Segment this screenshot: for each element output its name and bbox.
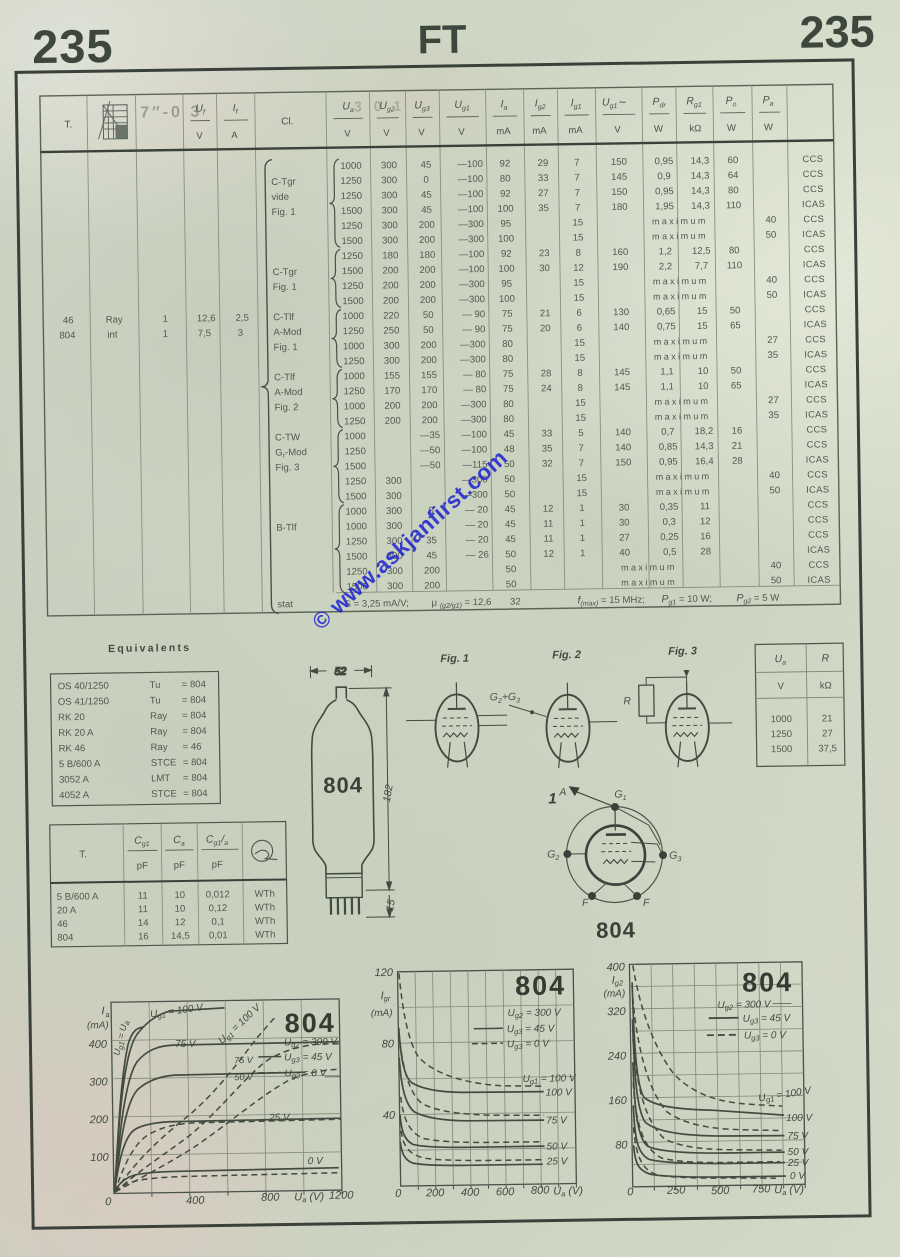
svg-text:40: 40	[765, 215, 776, 226]
svg-text:0: 0	[423, 175, 429, 186]
svg-text:15: 15	[574, 338, 585, 349]
svg-text:32: 32	[542, 458, 553, 469]
svg-text:Rg1: Rg1	[686, 95, 702, 109]
svg-text:0,25: 0,25	[660, 532, 679, 543]
svg-text:1: 1	[579, 503, 585, 514]
svg-text:0,01: 0,01	[209, 930, 228, 941]
svg-text:G1: G1	[614, 788, 626, 802]
svg-text:Ug3 = 45 V: Ug3 = 45 V	[507, 1023, 556, 1036]
svg-text:92: 92	[501, 249, 512, 260]
svg-text:W: W	[727, 123, 736, 134]
svg-text:vide: vide	[271, 192, 289, 203]
svg-text:7: 7	[574, 172, 580, 183]
svg-text:320: 320	[607, 1006, 626, 1018]
svg-text:50 V: 50 V	[234, 1072, 254, 1082]
svg-text:160: 160	[612, 247, 628, 258]
svg-text:ICAS: ICAS	[807, 575, 830, 585]
svg-text:200: 200	[384, 401, 400, 412]
svg-text:25 V: 25 V	[546, 1156, 569, 1167]
svg-text:140: 140	[615, 427, 631, 438]
svg-text:Ray: Ray	[106, 315, 123, 326]
svg-text:I: I	[101, 1005, 104, 1017]
svg-text:V: V	[344, 128, 351, 139]
svg-text:W: W	[654, 124, 663, 135]
svg-text:4052 A: 4052 A	[59, 790, 90, 801]
svg-text:Ug1 = 100 V: Ug1 = 100 V	[758, 1085, 814, 1105]
svg-text:21: 21	[732, 441, 743, 452]
svg-text:CCS: CCS	[805, 304, 826, 314]
svg-text:45: 45	[426, 550, 437, 561]
svg-text:92: 92	[500, 158, 511, 169]
svg-text:200: 200	[421, 355, 437, 366]
svg-text:1250: 1250	[344, 386, 366, 397]
svg-text:1: 1	[548, 790, 557, 807]
svg-text:—100: —100	[459, 264, 485, 275]
svg-text:10: 10	[174, 890, 185, 901]
svg-text:120: 120	[374, 967, 393, 979]
svg-text:= 804: = 804	[182, 710, 207, 721]
svg-text:CCS: CCS	[806, 364, 827, 374]
svg-text:stat: stat	[277, 599, 293, 610]
svg-text:CCS: CCS	[802, 154, 823, 164]
svg-text:A: A	[231, 130, 238, 141]
svg-text:—100: —100	[461, 429, 487, 440]
svg-text:11: 11	[138, 891, 148, 902]
svg-text:182: 182	[381, 784, 396, 804]
svg-text:75: 75	[503, 384, 514, 395]
svg-text:Igr: Igr	[380, 990, 390, 1003]
svg-text:150: 150	[611, 157, 627, 168]
svg-text:Cl.: Cl.	[281, 116, 293, 127]
svg-text:OS 41/1250: OS 41/1250	[58, 696, 109, 708]
svg-text:150: 150	[611, 187, 627, 198]
svg-text:100 V: 100 V	[546, 1087, 574, 1098]
svg-text:WTh: WTh	[255, 916, 275, 927]
svg-text:804: 804	[596, 917, 636, 943]
svg-text:750: 750	[752, 1183, 771, 1195]
svg-text:1250: 1250	[341, 191, 363, 202]
svg-text:20: 20	[540, 323, 551, 334]
svg-text:CCS: CCS	[805, 334, 826, 344]
svg-text:16: 16	[700, 531, 711, 542]
svg-text:200: 200	[89, 1114, 109, 1126]
svg-text:WTh: WTh	[255, 902, 275, 913]
svg-text:1: 1	[580, 533, 586, 544]
svg-text:75 V: 75 V	[787, 1131, 809, 1142]
svg-text:— 20: — 20	[465, 520, 488, 531]
svg-text:200: 200	[420, 280, 436, 291]
svg-text:80: 80	[503, 399, 514, 410]
svg-text:80: 80	[382, 1038, 395, 1050]
svg-text:300: 300	[386, 521, 402, 532]
svg-text:110: 110	[726, 200, 741, 211]
svg-text:200: 200	[421, 340, 437, 351]
svg-text:15: 15	[575, 398, 586, 409]
svg-text:Pg1 = 10 W;: Pg1 = 10 W;	[661, 593, 712, 607]
svg-text:11: 11	[543, 519, 553, 530]
svg-text:12,6: 12,6	[197, 313, 216, 324]
svg-text:15: 15	[574, 353, 585, 364]
svg-text:15: 15	[697, 306, 708, 317]
svg-text:400: 400	[606, 961, 625, 973]
svg-text:ICAS: ICAS	[804, 349, 827, 359]
svg-text:200: 200	[382, 265, 398, 276]
svg-text:12: 12	[543, 549, 554, 560]
svg-text:Ug3 = 0 V: Ug3 = 0 V	[507, 1039, 550, 1052]
svg-text:300: 300	[381, 190, 397, 201]
svg-text:7,5: 7,5	[198, 328, 212, 339]
svg-text:50: 50	[504, 474, 515, 485]
svg-text:Equivalents: Equivalents	[108, 642, 191, 655]
svg-text:20 A: 20 A	[57, 905, 77, 916]
svg-text:maximum: maximum	[655, 411, 711, 422]
svg-text:45: 45	[421, 160, 432, 171]
svg-text:1000: 1000	[346, 521, 368, 532]
svg-text:7: 7	[575, 188, 581, 199]
svg-text:—50: —50	[420, 445, 440, 456]
svg-text:V: V	[614, 124, 621, 135]
svg-text:1250: 1250	[343, 326, 365, 337]
svg-text:Ua (V): Ua (V)	[774, 1184, 804, 1197]
svg-text:Fig. 3: Fig. 3	[668, 645, 697, 657]
svg-text:1250: 1250	[344, 446, 366, 457]
svg-text:600: 600	[496, 1186, 515, 1198]
svg-text:1250: 1250	[346, 536, 368, 547]
svg-text:100: 100	[90, 1152, 109, 1164]
svg-text:50: 50	[506, 564, 517, 575]
svg-text:50: 50	[505, 549, 516, 560]
svg-text:—35: —35	[420, 430, 440, 441]
svg-text:400: 400	[186, 1195, 205, 1207]
svg-text:— 20: — 20	[465, 505, 488, 516]
svg-text:30: 30	[619, 502, 630, 513]
svg-text:—300: —300	[459, 294, 485, 305]
svg-text:11: 11	[700, 501, 710, 512]
svg-text:mA: mA	[568, 125, 583, 136]
svg-text:200: 200	[419, 220, 435, 231]
svg-text:— 80: — 80	[463, 384, 486, 395]
svg-text:45: 45	[505, 534, 516, 545]
svg-text:C-Tlf: C-Tlf	[274, 372, 295, 383]
svg-text:CCS: CCS	[804, 244, 825, 254]
svg-text:37,5: 37,5	[818, 743, 837, 754]
svg-text:6: 6	[577, 323, 583, 334]
svg-text:45: 45	[421, 190, 432, 201]
svg-text:Ua (V): Ua (V)	[294, 1191, 324, 1204]
svg-text:Fig. 2: Fig. 2	[274, 402, 298, 413]
svg-text:16: 16	[138, 931, 149, 942]
svg-text:804: 804	[59, 330, 76, 341]
svg-text:1000: 1000	[340, 161, 362, 172]
svg-text:CCS: CCS	[803, 169, 824, 179]
svg-text:ICAS: ICAS	[803, 259, 826, 269]
svg-text:Ug1 = 100 V: Ug1 = 100 V	[149, 1002, 205, 1021]
svg-text:mA: mA	[496, 126, 511, 137]
svg-text:180: 180	[612, 202, 628, 213]
svg-text:46: 46	[63, 315, 74, 326]
svg-text:— 90: — 90	[462, 309, 485, 320]
svg-text:maximum: maximum	[656, 471, 712, 482]
svg-text:—100: —100	[461, 444, 487, 455]
svg-text:Ig2: Ig2	[535, 98, 546, 112]
svg-text:300: 300	[381, 160, 397, 171]
svg-text:STCE: STCE	[151, 757, 177, 768]
svg-text:Ig1: Ig1	[571, 97, 582, 111]
svg-text:80: 80	[729, 245, 740, 256]
svg-text:150: 150	[615, 457, 631, 468]
svg-text:Fig. 1: Fig. 1	[272, 207, 296, 218]
svg-text:CCS: CCS	[808, 560, 829, 570]
svg-text:300: 300	[386, 506, 402, 517]
svg-text:10: 10	[698, 366, 709, 377]
svg-text:maximum: maximum	[654, 351, 710, 362]
svg-text:50 V: 50 V	[788, 1147, 810, 1158]
svg-text:CCS: CCS	[808, 514, 829, 524]
svg-text:A-Mod: A-Mod	[274, 387, 302, 398]
svg-text:Ug3 = 45 V: Ug3 = 45 V	[743, 1013, 792, 1026]
svg-text:92: 92	[500, 189, 511, 200]
svg-text:300: 300	[381, 175, 397, 186]
svg-text:F: F	[582, 897, 589, 909]
svg-text:800: 800	[531, 1185, 550, 1197]
svg-text:maximum: maximum	[656, 486, 712, 497]
svg-text:maximum: maximum	[654, 336, 710, 347]
svg-text:2,2: 2,2	[659, 261, 673, 272]
svg-text:33: 33	[538, 173, 549, 184]
svg-text:200: 200	[424, 565, 440, 576]
svg-text:15: 15	[384, 898, 398, 912]
svg-text:Ug2 = 300 V: Ug2 = 300 V	[717, 999, 772, 1012]
svg-text:50: 50	[766, 230, 777, 241]
svg-text:mA: mA	[532, 126, 547, 137]
svg-text:100: 100	[498, 264, 514, 275]
svg-text:200: 200	[422, 415, 438, 426]
svg-text:18,2: 18,2	[695, 426, 714, 437]
svg-text:CCS: CCS	[804, 274, 825, 284]
svg-text:7″-0 3: 7″-0 3	[140, 104, 202, 122]
svg-text:Ua (V): Ua (V)	[553, 1185, 583, 1198]
svg-text:8: 8	[577, 368, 583, 379]
svg-text:35: 35	[768, 410, 779, 421]
svg-text:15: 15	[576, 473, 587, 484]
svg-text:maximum: maximum	[655, 396, 711, 407]
svg-text:804: 804	[57, 932, 74, 943]
svg-text:50: 50	[731, 365, 742, 376]
svg-text:200: 200	[419, 235, 435, 246]
svg-text:1200: 1200	[329, 1189, 355, 1201]
svg-text:7: 7	[574, 157, 580, 168]
svg-text:50: 50	[423, 310, 434, 321]
svg-text:2,5: 2,5	[235, 313, 249, 324]
svg-text:300: 300	[384, 341, 400, 352]
svg-text:1000: 1000	[344, 431, 366, 442]
svg-text:80: 80	[500, 173, 511, 184]
svg-text:—100: —100	[459, 249, 485, 260]
svg-text:155: 155	[421, 370, 437, 381]
svg-text:0: 0	[395, 1188, 402, 1200]
svg-text:f(max) = 15 MHz;: f(max) = 15 MHz;	[577, 594, 645, 608]
svg-text:1500: 1500	[341, 206, 363, 217]
svg-text:33: 33	[542, 428, 553, 439]
svg-text:Ug3 = 45 V: Ug3 = 45 V	[284, 1052, 333, 1065]
svg-text:Ig2: Ig2	[612, 974, 624, 987]
svg-text:LMT: LMT	[151, 773, 170, 784]
svg-text:Ug1 = Ua: Ug1 = Ua	[111, 1019, 131, 1057]
svg-text:75 V: 75 V	[546, 1115, 568, 1126]
svg-text:1500: 1500	[346, 551, 368, 562]
svg-text:23: 23	[539, 248, 550, 259]
svg-text:1250: 1250	[771, 729, 793, 740]
svg-text:140: 140	[613, 322, 629, 333]
svg-text:15: 15	[575, 413, 586, 424]
svg-text:Ray: Ray	[150, 711, 167, 722]
svg-text:300: 300	[386, 491, 402, 502]
svg-text:15: 15	[574, 293, 585, 304]
svg-text:40: 40	[771, 560, 782, 571]
svg-text:145: 145	[614, 367, 630, 378]
svg-text:14,5: 14,5	[171, 931, 190, 942]
svg-text:WTh: WTh	[255, 889, 275, 900]
svg-text:Ug3 = 0 V: Ug3 = 0 V	[744, 1030, 787, 1043]
svg-text:1,2: 1,2	[659, 246, 673, 257]
svg-text:3052 A: 3052 A	[59, 774, 90, 785]
svg-text:180: 180	[419, 250, 435, 261]
svg-text:WTh: WTh	[255, 929, 275, 940]
svg-text:0: 0	[105, 1196, 112, 1208]
svg-text:ICAS: ICAS	[802, 229, 825, 239]
svg-text:1500: 1500	[771, 744, 793, 755]
svg-text:V: V	[458, 127, 465, 138]
svg-text:250: 250	[383, 325, 399, 336]
svg-text:16: 16	[732, 426, 743, 437]
svg-text:1500: 1500	[342, 296, 364, 307]
svg-text:300: 300	[387, 581, 403, 592]
svg-text:1000: 1000	[343, 341, 365, 352]
svg-text:Cg1: Cg1	[134, 834, 150, 848]
svg-text:52: 52	[335, 666, 347, 678]
svg-text:64: 64	[728, 170, 739, 181]
svg-text:60: 60	[728, 155, 739, 166]
svg-text:CCS: CCS	[803, 184, 824, 194]
svg-text:G2: G2	[547, 848, 559, 862]
svg-text:3: 3	[238, 328, 244, 339]
svg-text:180: 180	[382, 250, 398, 261]
svg-text:25 V: 25 V	[268, 1112, 291, 1123]
svg-text:1250: 1250	[342, 251, 364, 262]
svg-text:1: 1	[163, 329, 169, 340]
svg-text:80: 80	[615, 1139, 628, 1151]
svg-text:—300: —300	[461, 399, 487, 410]
svg-text:0,75: 0,75	[657, 321, 676, 332]
svg-text:200: 200	[385, 416, 401, 427]
svg-text:250: 250	[666, 1185, 686, 1197]
svg-text:—300: —300	[459, 279, 485, 290]
svg-text:Ug1∼: Ug1∼	[602, 96, 627, 110]
svg-text:804: 804	[284, 1008, 336, 1039]
svg-text:75 V: 75 V	[175, 1039, 197, 1050]
svg-text:80: 80	[502, 354, 513, 365]
svg-text:0,012: 0,012	[206, 889, 230, 900]
svg-text:0,9: 0,9	[657, 171, 671, 182]
svg-text:200: 200	[383, 295, 399, 306]
svg-text:400: 400	[89, 1039, 108, 1051]
svg-text:28: 28	[732, 456, 743, 467]
svg-text:1500: 1500	[345, 491, 367, 502]
svg-text:5 B/600 A: 5 B/600 A	[59, 759, 101, 771]
svg-text:50 V: 50 V	[546, 1141, 568, 1152]
svg-text:0,5: 0,5	[663, 547, 677, 558]
svg-text:A: A	[558, 786, 566, 798]
svg-text:15: 15	[697, 321, 708, 332]
svg-text:7,7: 7,7	[695, 261, 709, 272]
svg-text:—50: —50	[420, 460, 440, 471]
svg-text:80: 80	[503, 414, 514, 425]
svg-text:75: 75	[503, 369, 514, 380]
svg-text:Pg2 = 5 W: Pg2 = 5 W	[736, 592, 780, 606]
svg-text:Ray: Ray	[150, 726, 167, 737]
svg-text:Fig. 1: Fig. 1	[274, 342, 298, 353]
svg-text:ICAS: ICAS	[803, 289, 826, 299]
svg-text:500: 500	[711, 1185, 730, 1197]
svg-text:= 804: = 804	[182, 679, 207, 690]
svg-text:35: 35	[538, 203, 549, 214]
svg-text:Cg1/a: Cg1/a	[206, 833, 229, 847]
svg-text:12,5: 12,5	[692, 246, 711, 257]
svg-text:1500: 1500	[342, 266, 364, 277]
svg-text:1: 1	[580, 548, 586, 559]
svg-text:0 V: 0 V	[790, 1171, 807, 1182]
svg-text:RK 46: RK 46	[58, 743, 85, 754]
svg-text:RK 20 A: RK 20 A	[58, 727, 94, 739]
svg-text:0,7: 0,7	[661, 427, 675, 438]
svg-text:80: 80	[502, 339, 513, 350]
svg-text:35: 35	[767, 350, 778, 361]
svg-text:a: a	[105, 1010, 110, 1019]
svg-text:15: 15	[573, 232, 584, 243]
svg-text:Ug3 = 0 V: Ug3 = 0 V	[284, 1068, 327, 1081]
svg-text:CCS: CCS	[806, 394, 827, 404]
svg-text:300: 300	[384, 356, 400, 367]
svg-text:G3: G3	[669, 850, 681, 864]
svg-text:= 804: = 804	[183, 757, 208, 768]
svg-text:Fig. 2: Fig. 2	[552, 649, 581, 661]
svg-text:maximum: maximum	[621, 562, 677, 573]
svg-text:27: 27	[767, 335, 778, 346]
svg-text:If: If	[233, 102, 239, 116]
svg-text:CCS: CCS	[803, 214, 824, 224]
svg-text:= 804: = 804	[183, 788, 208, 799]
svg-text:1500: 1500	[345, 461, 367, 472]
svg-text:Pdr: Pdr	[652, 96, 666, 110]
svg-text:1250: 1250	[341, 221, 363, 232]
svg-text:0,35: 0,35	[660, 502, 679, 513]
svg-text:maximum: maximum	[653, 291, 709, 302]
svg-text:1,95: 1,95	[655, 201, 674, 212]
svg-text:50: 50	[423, 325, 434, 336]
svg-text:1000: 1000	[345, 506, 367, 517]
svg-text:200: 200	[420, 295, 436, 306]
svg-text:10: 10	[175, 904, 186, 915]
svg-text:200: 200	[419, 265, 435, 276]
svg-text:1000: 1000	[342, 311, 364, 322]
svg-text:ICAS: ICAS	[806, 454, 829, 464]
svg-text:50: 50	[769, 485, 780, 496]
svg-text:300: 300	[382, 235, 398, 246]
svg-text:95: 95	[501, 279, 512, 290]
svg-text:V: V	[383, 128, 390, 139]
svg-text:C-TW: C-TW	[275, 432, 301, 443]
svg-text:1250: 1250	[342, 281, 364, 292]
